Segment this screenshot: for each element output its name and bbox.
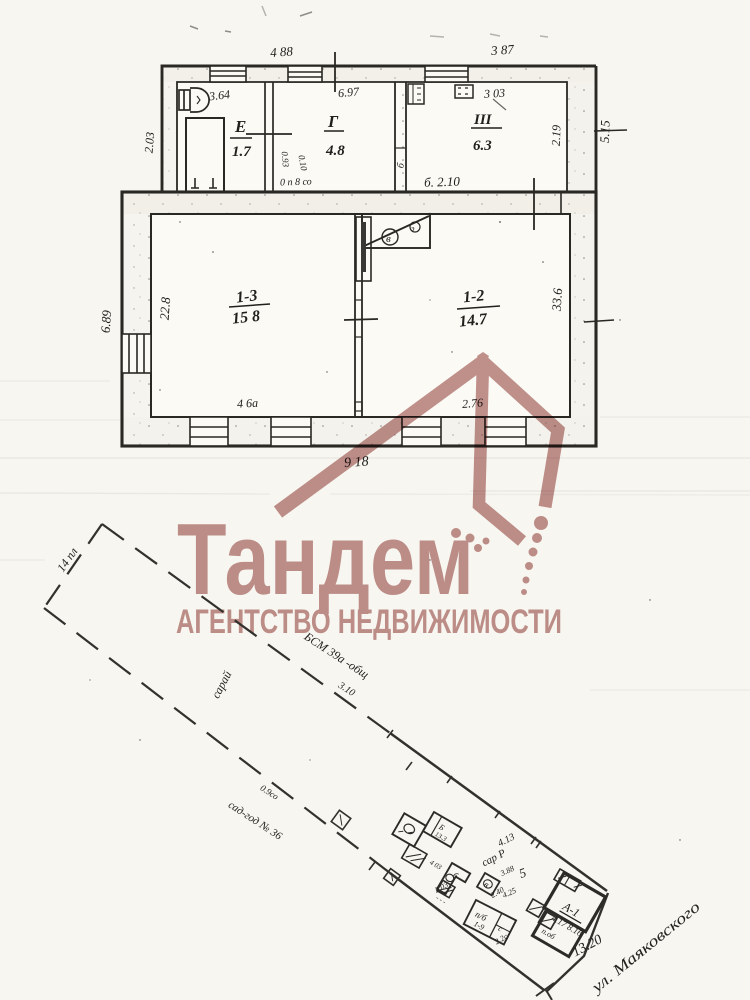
svg-text:4 6а: 4 6а (237, 396, 259, 411)
svg-text:III: III (473, 112, 493, 128)
svg-text:Г: Г (327, 112, 339, 131)
svg-text:4 88: 4 88 (270, 43, 294, 60)
svg-text:6.3: 6.3 (473, 138, 492, 154)
svg-text:2.19: 2.19 (549, 125, 564, 146)
svg-text:15 8: 15 8 (231, 308, 261, 328)
svg-text:33.6: 33.6 (549, 287, 566, 312)
svg-text:б. 2.10: б. 2.10 (424, 174, 461, 190)
svg-text:6.97: 6.97 (337, 84, 360, 100)
svg-text:1.7: 1.7 (232, 144, 251, 160)
svg-text:1-3: 1-3 (235, 287, 258, 306)
svg-text:5.15: 5.15 (597, 119, 613, 143)
svg-text:3 87: 3 87 (490, 41, 515, 58)
svg-text:Е: Е (234, 117, 246, 136)
svg-text:2.03: 2.03 (142, 131, 158, 153)
svg-text:3 03: 3 03 (483, 86, 506, 101)
svg-text:Тандем: Тандем (177, 504, 474, 616)
svg-text:0.93: 0.93 (280, 151, 291, 168)
svg-text:0 п 8 со: 0 п 8 со (280, 176, 312, 188)
svg-text:14.7: 14.7 (458, 311, 489, 331)
svg-text:1-2: 1-2 (462, 287, 485, 306)
svg-text:4.8: 4.8 (325, 143, 345, 159)
svg-text:в: в (386, 233, 391, 245)
svg-text:3.64: 3.64 (207, 87, 230, 103)
svg-text:6.89: 6.89 (98, 309, 115, 333)
svg-text:22.8: 22.8 (157, 296, 174, 320)
svg-text:э: э (411, 224, 415, 233)
svg-text:АГЕНТСТВО НЕДВИЖИМОСТИ: АГЕНТСТВО НЕДВИЖИМОСТИ (176, 603, 562, 641)
